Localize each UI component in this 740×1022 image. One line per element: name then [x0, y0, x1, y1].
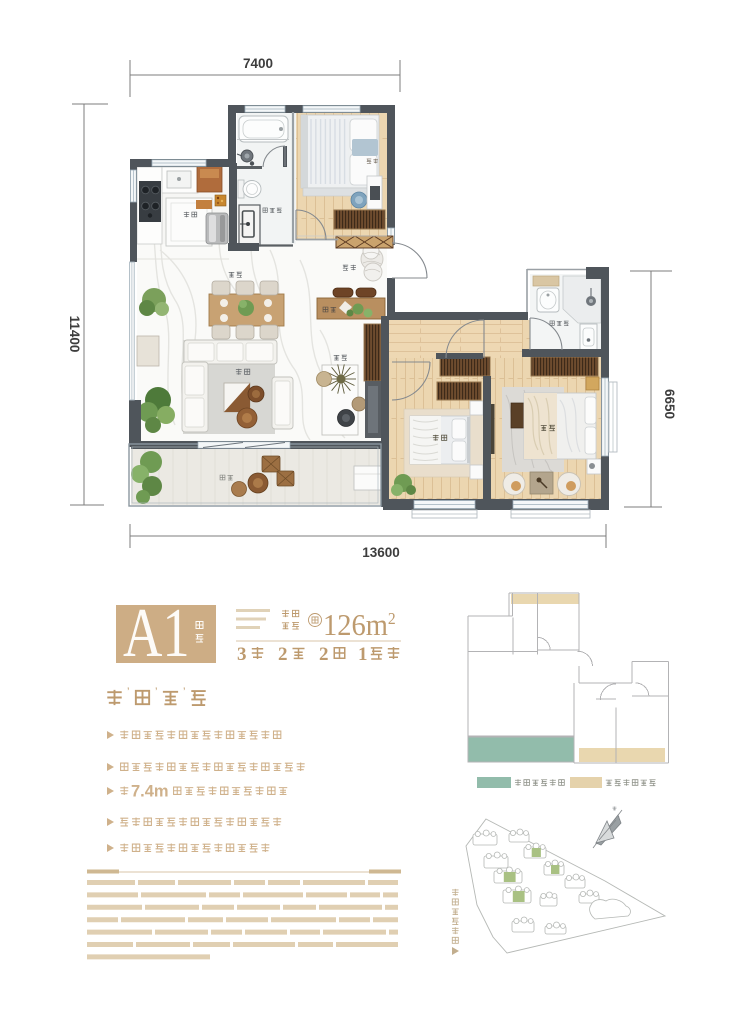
- svg-text:2: 2: [278, 644, 288, 665]
- svg-text:2: 2: [319, 644, 329, 665]
- svg-text:’: ’: [155, 686, 157, 698]
- svg-text:3: 3: [237, 644, 247, 665]
- svg-text:7.4m: 7.4m: [131, 783, 169, 801]
- svg-text:’: ’: [127, 686, 129, 698]
- svg-text:’: ’: [183, 686, 185, 698]
- svg-text:13600: 13600: [362, 545, 400, 560]
- svg-text:7400: 7400: [243, 56, 273, 71]
- svg-text:1: 1: [358, 644, 368, 665]
- svg-text:6650: 6650: [662, 389, 677, 419]
- svg-text:126m2: 126m2: [323, 608, 396, 642]
- svg-text:11400: 11400: [67, 316, 82, 353]
- svg-text:A1: A1: [123, 594, 190, 672]
